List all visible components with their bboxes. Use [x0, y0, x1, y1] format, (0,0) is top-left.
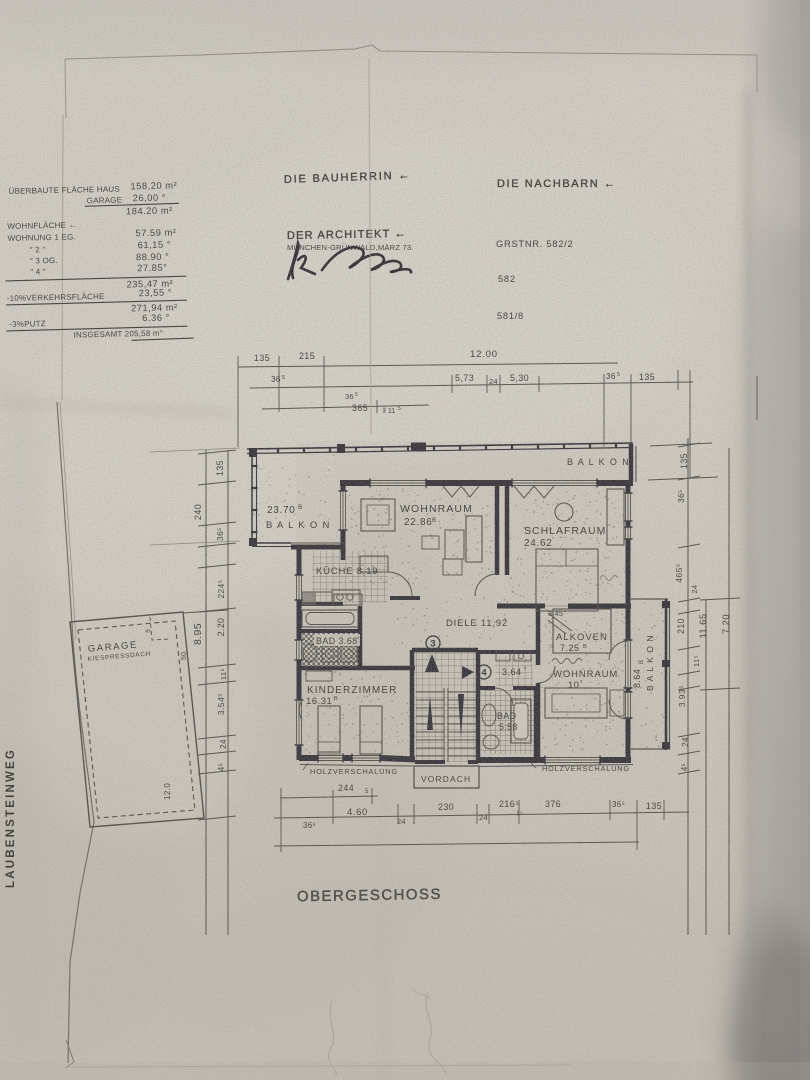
svg-text:23,55 °: 23,55 °: [139, 287, 173, 299]
svg-text:24: 24: [219, 739, 228, 749]
svg-text:3: 3: [430, 639, 435, 650]
svg-text:3,64: 3,64: [502, 667, 522, 677]
svg-text:B A L K O N: B A L K O N: [266, 520, 331, 531]
svg-text:135: 135: [679, 453, 689, 469]
svg-text:465⁵: 465⁵: [674, 563, 684, 583]
svg-text:61,15 °: 61,15 °: [138, 239, 172, 251]
svg-text:24: 24: [489, 377, 498, 386]
svg-text:210: 210: [676, 618, 686, 634]
svg-text:°: °: [357, 637, 359, 643]
svg-text:36: 36: [606, 372, 616, 381]
svg-text:DER ARCHITEKT ←: DER ARCHITEKT ←: [287, 228, 407, 242]
svg-text:36⁵: 36⁵: [612, 800, 625, 809]
svg-text:16.31: 16.31: [306, 696, 332, 707]
svg-text:5,73: 5,73: [455, 373, 474, 383]
svg-text:SCHLAFRAUM: SCHLAFRAUM: [524, 525, 606, 537]
svg-text:224⁵: 224⁵: [216, 579, 226, 598]
svg-text:22.86: 22.86: [404, 517, 433, 528]
svg-text:36⁵: 36⁵: [216, 527, 225, 541]
svg-text:‖⁵: ‖⁵: [517, 811, 523, 818]
svg-text:5,30: 5,30: [510, 373, 529, 383]
svg-text:LAUBENSTEINWEG: LAUBENSTEINWEG: [5, 748, 17, 888]
svg-text:12.0: 12.0: [163, 783, 172, 800]
svg-text:5: 5: [282, 375, 285, 381]
svg-text:230: 230: [438, 802, 454, 812]
svg-text:36⁵: 36⁵: [303, 821, 316, 830]
svg-text:36: 36: [345, 392, 354, 401]
svg-text:KÜCHE 8.19: KÜCHE 8.19: [316, 566, 378, 577]
svg-text:B: B: [583, 644, 587, 650]
svg-text:36⁵: 36⁵: [677, 489, 686, 503]
svg-text:″ 4 ″: ″ 4 ″: [30, 267, 46, 276]
svg-text:KINDERZIMMER: KINDERZIMMER: [307, 685, 397, 696]
svg-text:4: 4: [481, 668, 487, 679]
svg-text:B: B: [298, 504, 302, 511]
svg-text:-3%PUTZ: -3%PUTZ: [9, 319, 46, 329]
svg-text:135: 135: [254, 353, 270, 363]
svg-text:‖ 11: ‖ 11: [383, 408, 395, 415]
svg-text:WOHNRAUM: WOHNRAUM: [553, 669, 618, 680]
svg-text:BAD: BAD: [497, 711, 517, 721]
svg-text:50: 50: [181, 652, 188, 660]
svg-text:WOHNUNG 1 EG.: WOHNUNG 1 EG.: [7, 233, 76, 243]
svg-text:7.20: 7.20: [721, 614, 732, 634]
svg-text:10: 10: [568, 680, 579, 691]
svg-text:ALKOVEN: ALKOVEN: [556, 632, 608, 643]
svg-text:B A L K O N: B A L K O N: [567, 457, 630, 467]
svg-text:24: 24: [690, 584, 699, 593]
svg-text:215: 215: [299, 351, 315, 361]
svg-text:11⁵: 11⁵: [219, 668, 228, 680]
svg-text:184.20 m²: 184.20 m²: [126, 204, 173, 216]
svg-text:HOLZVERSCHALUNG: HOLZVERSCHALUNG: [542, 764, 630, 773]
svg-text:23.70: 23.70: [267, 505, 296, 516]
svg-text:DIE NACHBARN ←: DIE NACHBARN ←: [497, 178, 617, 190]
svg-text:5: 5: [355, 392, 358, 398]
svg-text:4⁵: 4⁵: [217, 763, 226, 772]
svg-text:B: B: [432, 518, 436, 524]
svg-text:135: 135: [639, 372, 655, 382]
svg-text:GRSTNR. 582/2: GRSTNR. 582/2: [496, 238, 573, 249]
svg-text:26,00 °: 26,00 °: [133, 192, 167, 204]
svg-text:″ 3 OG.: ″ 3 OG.: [30, 256, 58, 266]
svg-text:INSGESAMT 205,58 m°: INSGESAMT 205,58 m°: [73, 329, 163, 340]
svg-text:57.59 m²: 57.59 m²: [135, 226, 176, 238]
svg-text:88.90 °: 88.90 °: [136, 251, 170, 263]
svg-text:WOHNRAUM: WOHNRAUM: [400, 503, 473, 515]
svg-text:27.85°: 27.85°: [137, 262, 167, 274]
svg-text:5.58: 5.58: [499, 722, 518, 732]
svg-text:HOLZVERSCHALUNG: HOLZVERSCHALUNG: [310, 767, 398, 776]
svg-text:24.62: 24.62: [524, 538, 553, 549]
svg-text:BAD 3.68: BAD 3.68: [316, 636, 358, 646]
svg-text:581/8: 581/8: [497, 310, 524, 321]
svg-text:8.64: 8.64: [632, 669, 642, 688]
svg-text:158,20 m²: 158,20 m²: [130, 179, 177, 191]
svg-text:11⁵: 11⁵: [692, 655, 701, 667]
svg-text:3.93⁵: 3.93⁵: [677, 685, 687, 707]
svg-text:216⁵: 216⁵: [499, 799, 519, 809]
svg-text:8.95: 8.95: [192, 623, 204, 645]
svg-text:OBERGESCHOSS: OBERGESCHOSS: [297, 887, 442, 906]
svg-text:135: 135: [215, 460, 225, 476]
svg-text:24: 24: [681, 737, 690, 747]
svg-text:5: 5: [398, 406, 401, 412]
svg-text:24: 24: [479, 813, 488, 822]
svg-text:135: 135: [646, 801, 662, 811]
svg-text:″ 2 ″: ″ 2 ″: [30, 245, 46, 254]
svg-text:365: 365: [352, 403, 368, 413]
svg-text:4.60: 4.60: [347, 807, 368, 818]
svg-text:DIELE 11,92: DIELE 11,92: [446, 618, 508, 629]
svg-text:376: 376: [545, 799, 561, 809]
svg-text:582: 582: [498, 273, 516, 284]
svg-text:3.54⁵: 3.54⁵: [216, 693, 226, 715]
svg-text:11.65: 11.65: [698, 613, 709, 638]
svg-text:240: 240: [193, 504, 203, 520]
svg-text:244: 244: [338, 783, 354, 793]
svg-text:12.00: 12.00: [470, 349, 498, 360]
svg-text:3,45: 3,45: [548, 609, 563, 618]
svg-text:B A L K O N: B A L K O N: [645, 634, 655, 691]
svg-text:5: 5: [617, 372, 620, 378]
svg-text:GARAGE: GARAGE: [87, 196, 123, 206]
svg-text:VORDACH: VORDACH: [421, 774, 471, 784]
svg-text:6.36 °: 6.36 °: [142, 312, 170, 324]
svg-text:WOHNFLÄCHE ←: WOHNFLÄCHE ←: [7, 220, 77, 230]
svg-text:2.20: 2.20: [216, 618, 226, 637]
